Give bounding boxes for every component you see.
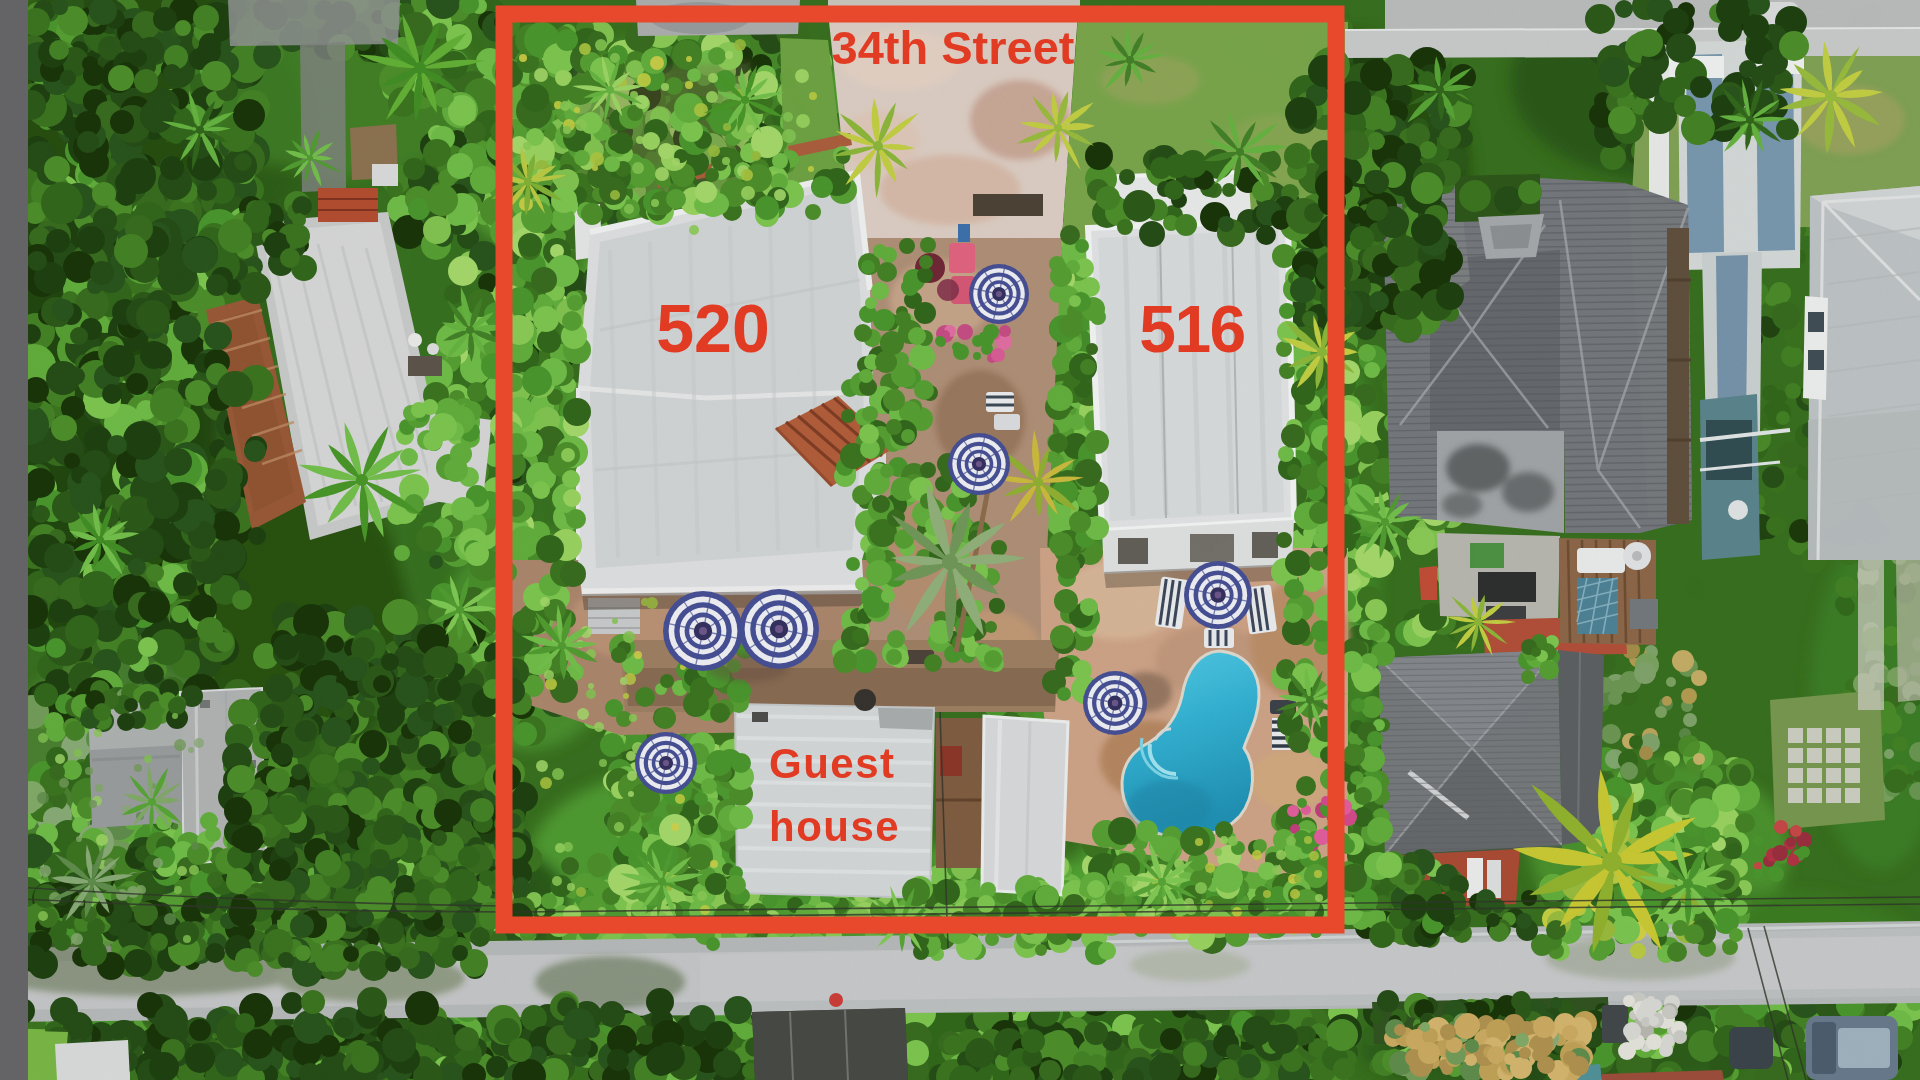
svg-text:520: 520 <box>656 290 769 366</box>
svg-text:house: house <box>769 803 900 850</box>
svg-text:34th Street: 34th Street <box>832 21 1075 74</box>
svg-text:Guest: Guest <box>769 740 896 787</box>
svg-text:516: 516 <box>1139 292 1245 366</box>
